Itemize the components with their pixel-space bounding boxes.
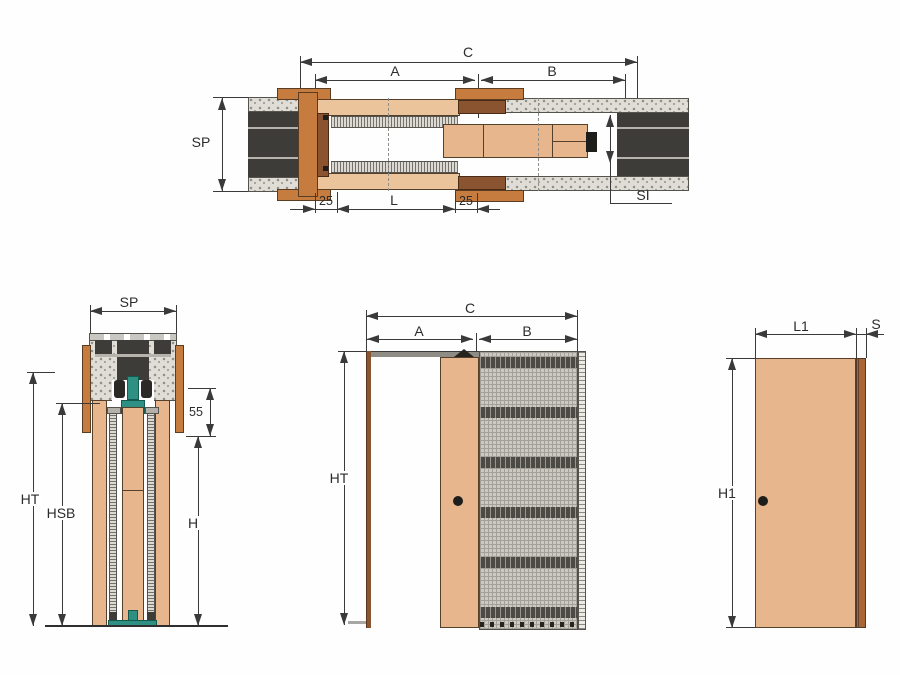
arrowhead-right-icon <box>844 330 856 338</box>
panel-door-face <box>755 358 856 628</box>
elev-dim-ht-line <box>344 351 345 625</box>
section-mesh-foot <box>109 612 117 620</box>
arrowhead-down-icon <box>606 151 614 163</box>
arrowhead-right-icon <box>625 58 637 66</box>
arrowhead-up-icon <box>29 372 37 384</box>
section-dim-label-sp: SP <box>120 295 139 309</box>
section-dim-label-ht: HT <box>18 492 43 506</box>
arrowhead-right-icon <box>463 76 475 84</box>
plan-dim-bottom-line <box>290 209 500 210</box>
plan-pocket-mesh-bottom <box>331 161 458 173</box>
panel-dim-ext <box>866 328 867 358</box>
section-jamb-right <box>175 345 184 433</box>
arrowhead-left-icon <box>90 307 102 315</box>
panel-dim-label-l1: L1 <box>793 319 809 333</box>
panel-dim-label-h1: H1 <box>715 486 739 500</box>
arrowhead-left-icon <box>300 58 312 66</box>
plan-dim-label-25-left: 25 <box>319 195 333 208</box>
arrowhead-up-icon <box>340 351 348 363</box>
plan-dim-si-leader <box>610 203 672 204</box>
plan-door-pull-handle <box>586 132 597 152</box>
section-dim-55-ext <box>188 388 216 389</box>
elev-pocket-cassette-mesh <box>479 351 578 630</box>
plan-dim-sp-line <box>222 98 223 191</box>
section-door-joint <box>122 490 144 491</box>
panel-door-knob <box>758 496 768 506</box>
plan-dim-c-ext-right <box>637 56 638 98</box>
arrowhead-right-icon <box>461 335 473 343</box>
panel-door-edge-line <box>858 358 859 628</box>
plan-closing-jamb-cap-top <box>455 88 524 100</box>
plan-left-wall-core <box>248 112 302 177</box>
section-roller-carriage <box>127 376 139 400</box>
section-header-block <box>154 340 171 354</box>
arrowhead-left-icon <box>366 312 378 320</box>
section-pocket-wall-left <box>92 400 107 626</box>
elev-cassette-end-profile <box>578 351 586 630</box>
section-mesh-cap <box>145 407 159 414</box>
elev-jamb-post <box>366 351 371 628</box>
plan-dim-c-line <box>300 62 637 63</box>
elev-dim-a-line <box>367 339 473 340</box>
section-dim-sp-ext <box>90 305 91 333</box>
section-floor-line <box>45 625 228 627</box>
elev-cassette-crossbar <box>480 357 577 368</box>
arrowhead-up-icon <box>58 403 66 415</box>
plan-centerline <box>388 98 389 191</box>
plan-wall-joint-line <box>248 127 302 129</box>
plan-dim-label-sp: SP <box>192 135 211 149</box>
elev-dim-b-line <box>479 339 577 340</box>
arrowhead-down-icon <box>206 424 214 436</box>
elev-cassette-base-dots <box>480 622 577 627</box>
plan-dim-tick <box>315 193 316 213</box>
section-header-block <box>117 340 149 354</box>
panel-dim-ext <box>755 328 756 358</box>
arrowhead-up-icon <box>206 388 214 400</box>
elev-door-leaf <box>440 357 479 628</box>
panel-dim-h1-ext <box>726 627 755 628</box>
plan-bracket-hook <box>323 115 328 120</box>
section-dim-label-55: 55 <box>189 406 203 419</box>
arrowhead-left-icon <box>337 205 349 213</box>
section-dim-hsb-ext <box>56 403 100 404</box>
plan-door-joint <box>483 124 484 158</box>
plan-dim-tick <box>455 192 456 213</box>
arrowhead-right-icon <box>565 335 577 343</box>
section-mesh-cap <box>107 407 121 414</box>
elev-dim-label-a: A <box>414 324 423 338</box>
section-header-block <box>95 340 112 354</box>
section-pocket-wall-right <box>155 400 170 626</box>
arrowhead-up-icon <box>218 98 226 110</box>
section-mesh-panel-right <box>147 414 155 620</box>
arrowhead-left-icon <box>367 335 379 343</box>
arrowhead-down-icon <box>29 614 37 626</box>
plan-left-jamb-post <box>298 92 318 197</box>
plan-dim-sp-ext-bottom <box>213 191 248 192</box>
arrowhead-down-icon <box>218 179 226 191</box>
section-mesh-foot <box>147 612 155 620</box>
plan-bracket-hook <box>323 166 328 171</box>
panel-dim-ext <box>856 328 857 358</box>
elev-dim-ext <box>366 310 367 351</box>
arrowhead-left-icon <box>755 330 767 338</box>
panel-dim-l1-line <box>755 334 856 335</box>
elev-cassette-crossbar <box>480 557 577 568</box>
arrowhead-right-icon <box>565 312 577 320</box>
section-dim-label-h: H <box>185 516 201 530</box>
plan-dim-b-line <box>481 80 625 81</box>
plan-closing-jamb-bracket-top <box>458 100 506 114</box>
elev-cassette-crossbar <box>480 457 577 468</box>
arrowhead-left-icon <box>315 76 327 84</box>
elev-dim-label-c: C <box>465 301 475 315</box>
plan-dim-tick <box>337 192 338 213</box>
plan-dim-ab-ext <box>625 74 626 98</box>
plan-closing-jamb-bracket-bottom <box>458 176 506 190</box>
plan-dim-label-c: C <box>463 45 473 59</box>
arrowhead-down-icon <box>340 613 348 625</box>
plan-dim-a-line <box>315 80 475 81</box>
elev-door-knob <box>453 496 463 506</box>
plan-wall-joint-line <box>617 127 689 129</box>
elev-cassette-crossbar <box>480 507 577 518</box>
arrowhead-left-icon <box>479 335 491 343</box>
elev-dim-ext <box>577 310 578 351</box>
arrowhead-left-icon <box>477 205 489 213</box>
elev-dim-c-line <box>366 316 577 317</box>
plan-wall-joint-line <box>617 157 689 159</box>
plan-dim-label-b: B <box>547 64 556 78</box>
plan-dim-label-a: A <box>390 64 399 78</box>
plan-dim-label-l: L <box>390 193 398 207</box>
section-dim-ht-ext <box>27 372 55 373</box>
panel-dim-h1-ext <box>726 358 755 359</box>
plan-wall-joint-line <box>248 157 302 159</box>
elev-hanger-icon <box>454 349 474 357</box>
arrowhead-right-icon <box>613 76 625 84</box>
panel-dim-label-s: S <box>871 317 880 331</box>
section-door-leaf <box>122 407 144 622</box>
arrowhead-right-icon <box>303 205 315 213</box>
arrowhead-right-icon <box>443 205 455 213</box>
section-roller-wheel <box>114 380 125 398</box>
plan-dim-tick <box>477 193 478 213</box>
section-mesh-panel-left <box>109 414 117 620</box>
section-dim-sp-ext <box>176 305 177 333</box>
arrowhead-left-icon <box>481 76 493 84</box>
plan-door-joint <box>552 141 588 142</box>
elev-dim-label-ht: HT <box>327 471 352 485</box>
section-dim-h-line <box>198 436 199 626</box>
arrowhead-up-icon <box>728 358 736 370</box>
plan-dim-label-25-right: 25 <box>459 195 473 208</box>
elev-cassette-crossbar <box>480 407 577 418</box>
plan-dim-label-si: SI <box>636 188 649 202</box>
elev-dim-ht-ext <box>338 351 367 352</box>
plan-centerline <box>538 98 539 191</box>
drawing-sheet: C A B SP <box>0 0 900 675</box>
plan-right-wall-core <box>617 113 689 176</box>
section-roller-wheel <box>141 380 152 398</box>
plan-pocket-mesh-top <box>331 116 458 128</box>
plan-dim-c-ext-left <box>300 56 301 90</box>
elev-floor-mark <box>348 621 366 624</box>
elev-dim-label-b: B <box>522 324 531 338</box>
section-dim-label-hsb: HSB <box>44 506 79 520</box>
arrowhead-right-icon <box>164 307 176 315</box>
arrowhead-up-icon <box>194 436 202 448</box>
elev-cassette-crossbar <box>480 607 577 618</box>
section-jamb-left <box>82 345 91 433</box>
arrowhead-up-icon <box>606 115 614 127</box>
